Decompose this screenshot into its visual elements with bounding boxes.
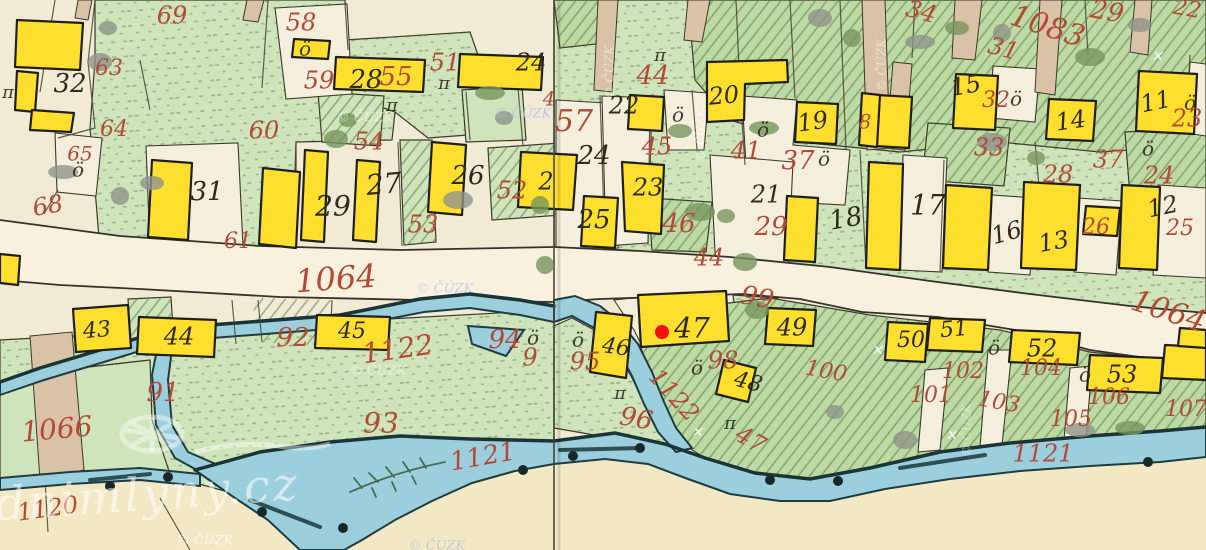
tree-symbol-o-icon: ö [299, 37, 311, 61]
building-number-label: 19 [796, 106, 830, 138]
map-canvas[interactable]: öööööööööööööππππππ 32312928272624224252… [0, 0, 1206, 550]
survey-cross-icon: ✕ [871, 343, 884, 359]
tree-blob-icon [1128, 18, 1152, 32]
building-number-label: 13 [1036, 225, 1071, 258]
parcel-number-label: 58 [286, 9, 317, 37]
building-number-label: 51 [939, 316, 969, 343]
building-number-label: 26 [450, 161, 484, 191]
survey-cross-icon: ✕ [1151, 49, 1164, 65]
parcel-number-label: 68 [30, 189, 65, 222]
watermark-text: © ČÚZK [873, 38, 889, 91]
tree-blob-icon [905, 35, 935, 49]
building-number-label: 32 [53, 69, 86, 99]
watermark-text: © ČÚZK [337, 109, 395, 126]
bush-blob-icon [733, 253, 757, 271]
boundary-point-dot [833, 476, 843, 486]
parcel-number-label: 106 [1088, 385, 1130, 410]
parcel-number-label: 23 [1171, 105, 1203, 133]
building-number-label: 18 [827, 201, 865, 236]
grass-symbol-icon: π [1, 82, 15, 103]
parcel-number-label: 26 [1081, 215, 1110, 240]
building-number-label: 44 [163, 323, 195, 351]
parcel-number-label: 9 [522, 344, 537, 372]
parcel-number-label: 24 [1143, 162, 1175, 190]
building-number-label: 21 [750, 181, 782, 209]
parcel-number-label: 55 [379, 62, 412, 92]
tree-symbol-o-icon: ö [691, 356, 703, 380]
parcel-number-label: 45 [641, 133, 673, 161]
building-number-label: 24 [515, 49, 547, 77]
building-number-label: 17 [910, 189, 946, 222]
parcel-number-label: 33 [974, 134, 1005, 162]
parcel-number-label: 1064 [294, 257, 378, 301]
parcel-number-label: 92 [276, 323, 309, 353]
boundary-point-dot [518, 465, 528, 475]
tree-symbol-o-icon: ö [672, 103, 684, 127]
bush-blob-icon [717, 209, 735, 223]
parcel-number-label: 69 [157, 2, 188, 30]
parcel-number-label: 99 [738, 280, 776, 315]
parcel-number-label: 57 [555, 104, 594, 139]
tree-blob-icon [893, 431, 917, 449]
parcel-number-label: 60 [249, 117, 280, 145]
building-number-label: 15 [948, 69, 983, 102]
parcel-number-label: 65 [67, 142, 92, 166]
building-number-label: 14 [1054, 105, 1088, 137]
parcel-number-label: 8 [859, 110, 872, 134]
tree-blob-icon [826, 405, 844, 419]
watermark-text: © ČÚZK [495, 105, 553, 122]
parcel-number-label: 94 [488, 325, 521, 355]
parcel-number-label: 37 [781, 146, 815, 176]
boundary-point-dot [338, 523, 348, 533]
tree-blob-icon [808, 9, 832, 27]
building-number-label: 47 [673, 312, 710, 345]
tree-symbol-o-icon: ö [988, 336, 1000, 360]
bush-blob-icon [531, 196, 549, 214]
building-number-label: 23 [632, 174, 664, 202]
watermark-text: © ČÚZK [958, 403, 974, 456]
building-number-label: 50 [897, 328, 925, 353]
parcel-number-label: 44 [635, 61, 669, 91]
grass-symbol-icon: π [723, 413, 737, 434]
parcel-number-label: 93 [363, 407, 399, 440]
parcel-number-label: 101 [910, 383, 952, 408]
parcel-number-label: 98 [708, 347, 739, 375]
tree-blob-icon [140, 176, 164, 190]
parcel-number-label: 41 [730, 137, 762, 165]
watermark-text: © ČÚZK [417, 280, 475, 297]
parcel-number-label: 61 [224, 229, 252, 254]
parcel-number-label: 63 [95, 56, 123, 81]
parcel-number-label: 44 [693, 244, 725, 272]
parcel-number-label: 25 [1165, 216, 1194, 241]
bush-blob-icon [843, 29, 861, 47]
building-number-label: 25 [576, 205, 610, 235]
watermark-text: © ČÚZK [601, 45, 617, 98]
selected-parcel-marker[interactable] [655, 325, 669, 339]
building-number-label: 28 [348, 65, 382, 95]
red-point-marker-icon[interactable] [655, 325, 669, 339]
bush-blob-icon [945, 21, 969, 35]
tree-symbol-o-icon: ö [1010, 87, 1022, 111]
parcel-number-label: 32 [982, 88, 1010, 113]
parcel-number-label: 54 [354, 128, 385, 156]
parcel-number-label: 1066 [20, 409, 94, 448]
parcel-number-label: 37 [1093, 146, 1124, 174]
building-number-label: 49 [776, 314, 808, 342]
parcel-number-label: 91 [146, 378, 179, 408]
building-number-label: 20 [706, 80, 740, 111]
tree-symbol-o-icon: ö [1079, 363, 1091, 387]
tree-symbol-o-icon: ö [818, 147, 830, 171]
parcel-number-label: 28 [1042, 161, 1074, 189]
tree-blob-icon [111, 187, 129, 205]
building-number-label: 27 [364, 166, 404, 202]
survey-cross-icon: ✕ [945, 428, 958, 444]
watermark-text: © ČÚZK [409, 537, 467, 550]
building-number-label: 24 [576, 141, 610, 171]
watermark-text: © ČÚZK [350, 362, 408, 379]
parcel-number-label: 96 [617, 401, 655, 436]
tree-blob-icon [99, 21, 117, 35]
bush-blob-icon [536, 256, 554, 274]
parcel-number-label: 64 [100, 117, 128, 142]
tree-symbol-o-icon: ö [1142, 137, 1154, 161]
watermark-text: © ČÚZK [177, 532, 235, 549]
boundary-point-dot [635, 443, 645, 453]
building-number-label: 2 [537, 168, 553, 196]
boundary-point-dot [1143, 457, 1153, 467]
parcel-number-label: 104 [1020, 356, 1062, 381]
watermark-text: © ČÚZK [692, 108, 708, 161]
bush-blob-icon [475, 86, 505, 100]
building-number-label: 43 [81, 317, 112, 344]
parcel-number-label: 95 [570, 348, 601, 376]
cadastral-map-svg[interactable]: öööööööööööööππππππ 32312928272624224252… [0, 0, 1206, 550]
parcel-number-label: 52 [497, 177, 528, 205]
tree-blob-icon [443, 191, 473, 209]
parcel-number-label: 1121 [1012, 440, 1073, 468]
parcel-number-label: 102 [942, 359, 984, 384]
parcel-number-label: 29 [753, 212, 787, 242]
bush-blob-icon [1115, 421, 1145, 435]
bush-blob-icon [324, 130, 348, 148]
parcel-number-label: 107 [1165, 397, 1206, 422]
parcel-number-label: 59 [304, 67, 335, 95]
boundary-point-dot [765, 475, 775, 485]
parcel-number-label: 53 [408, 211, 439, 239]
parcel-number-label: 46 [661, 209, 695, 239]
building-number-label: 29 [314, 190, 351, 223]
survey-cross-icon: ✕ [691, 425, 704, 441]
building-number-label: 31 [190, 177, 223, 207]
parcel-number-label: 105 [1050, 407, 1092, 432]
boundary-point-dot [568, 451, 578, 461]
parcel-number-label: 51 [430, 49, 461, 77]
building-number-label: 46 [599, 333, 631, 362]
